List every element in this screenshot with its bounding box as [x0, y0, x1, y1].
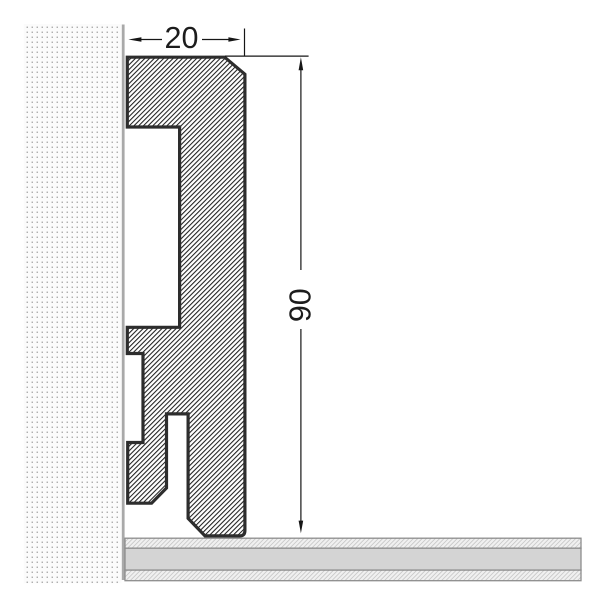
svg-text:90: 90	[284, 288, 318, 322]
svg-text:20: 20	[165, 21, 199, 55]
